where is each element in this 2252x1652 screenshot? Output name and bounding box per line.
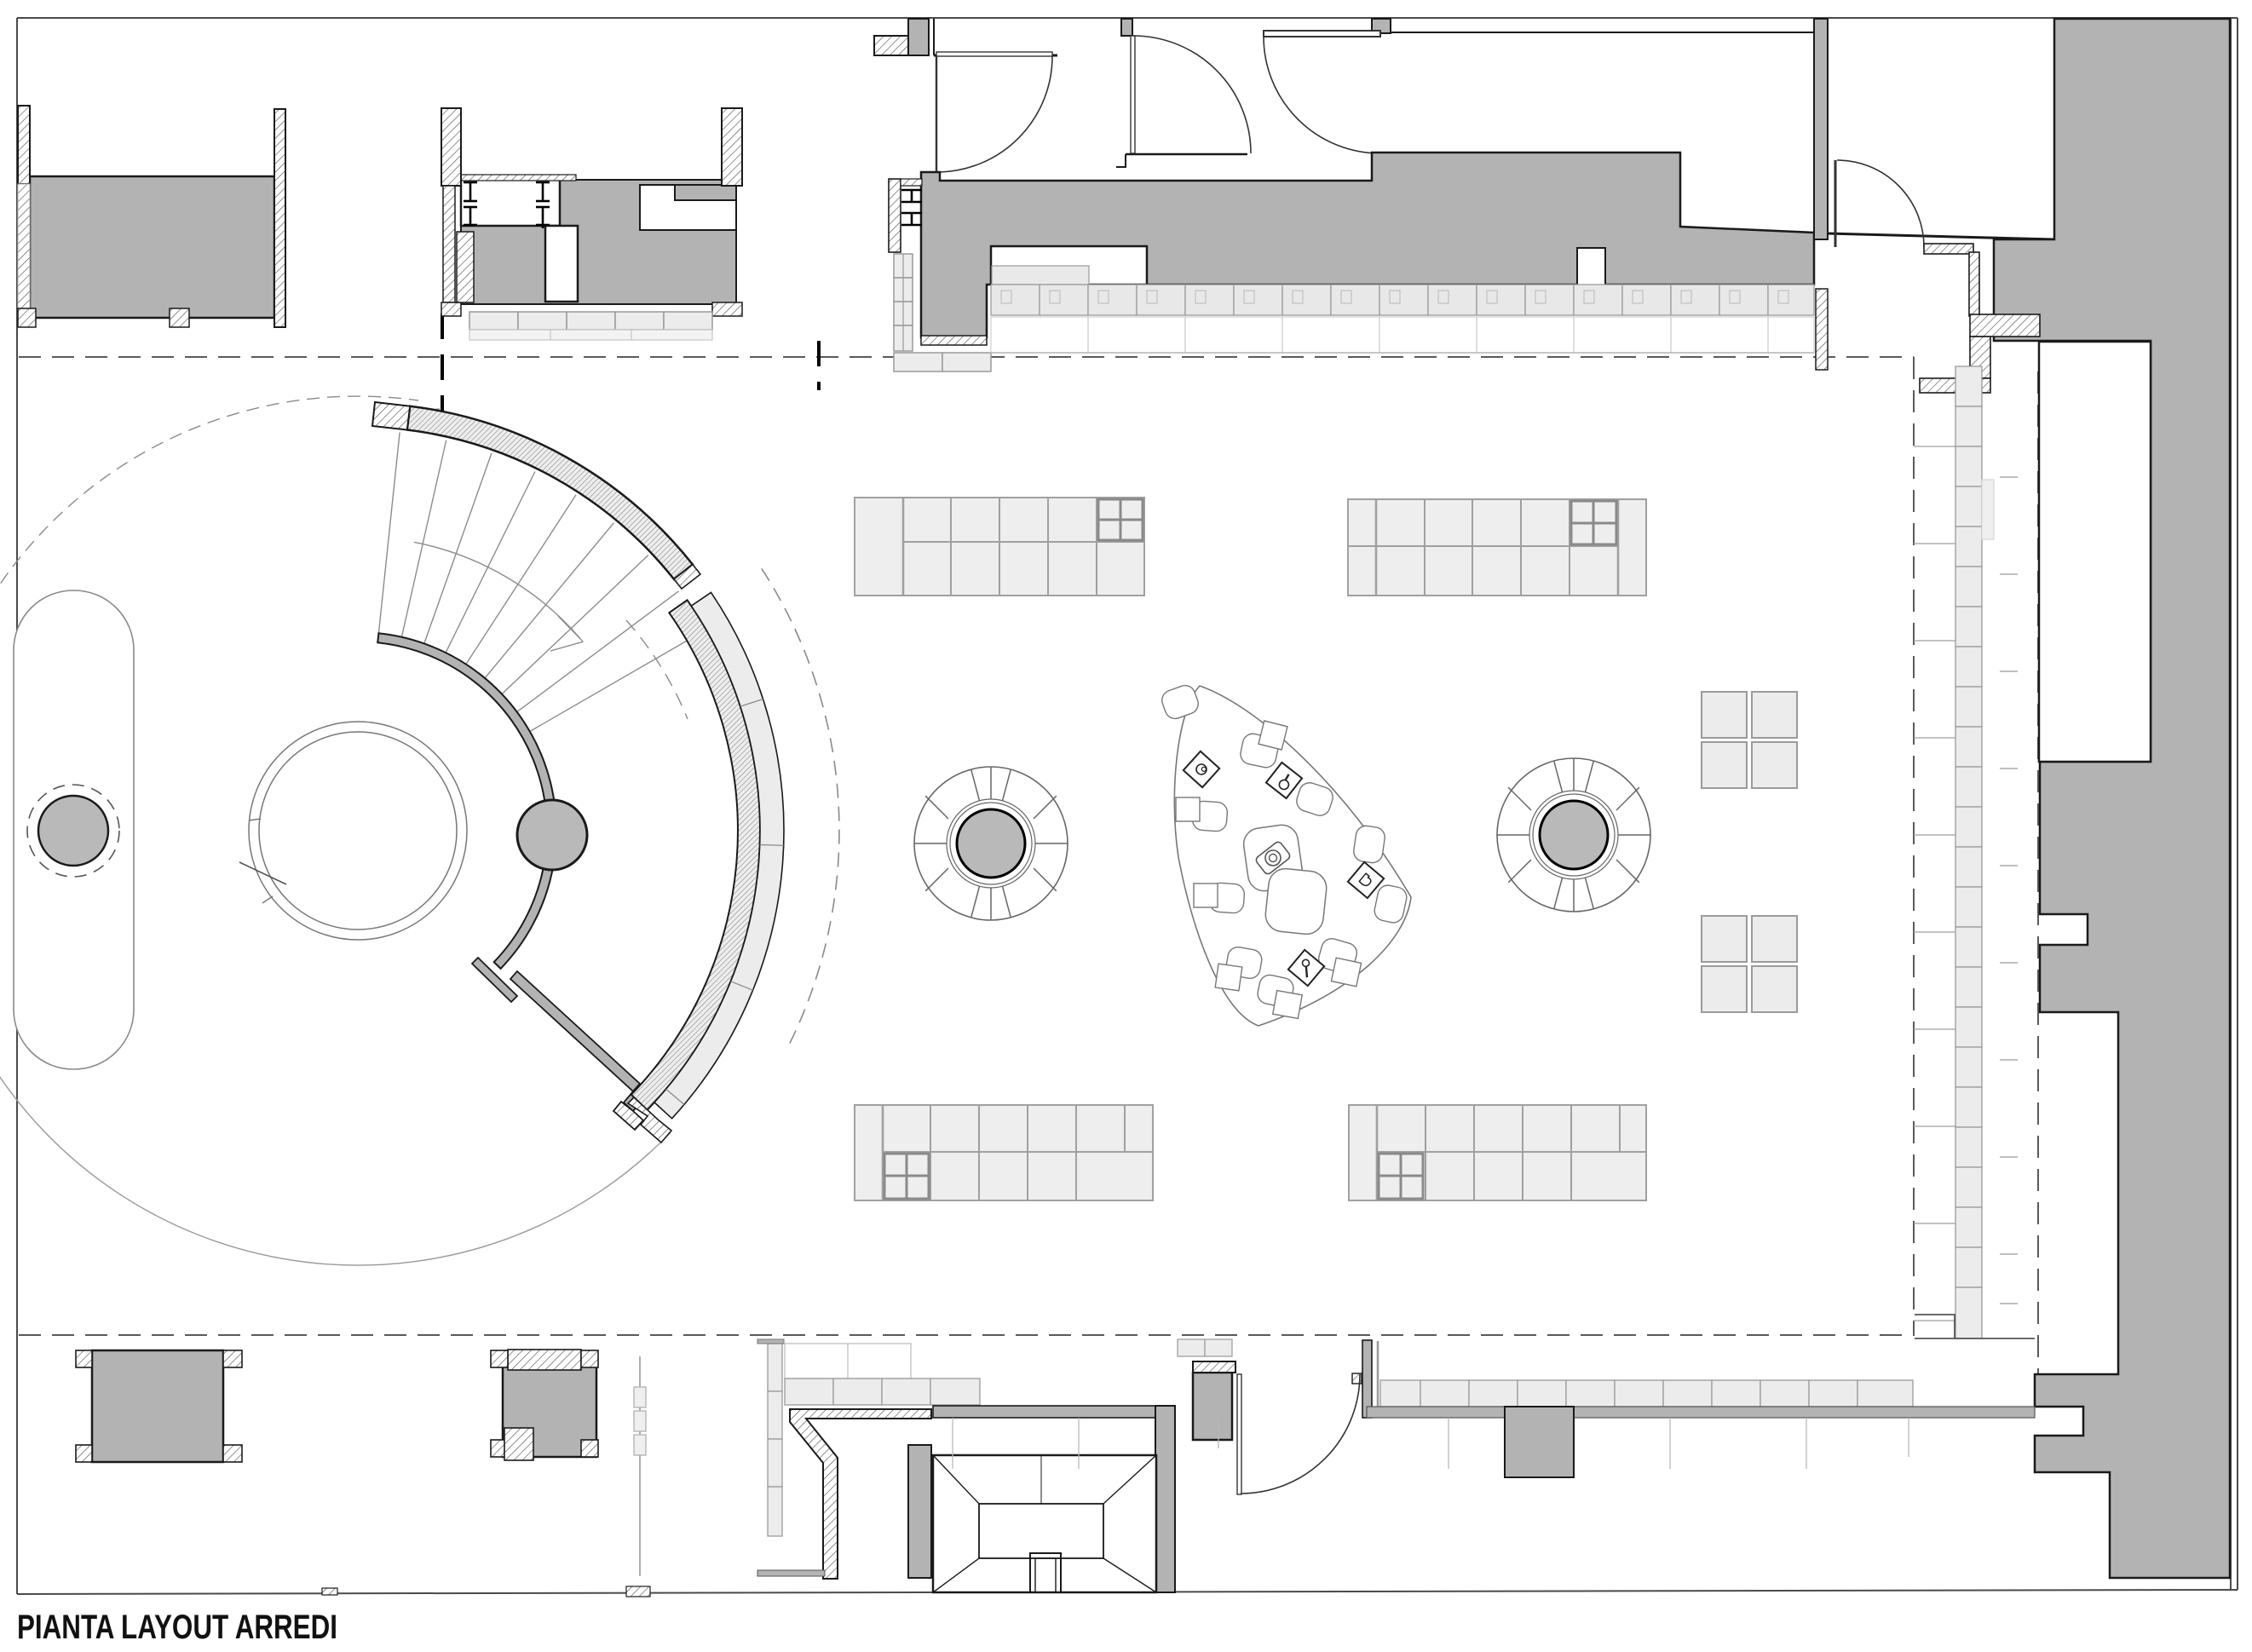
svg-text:PIANTA LAYOUT ARREDI: PIANTA LAYOUT ARREDI [17,1609,337,1646]
